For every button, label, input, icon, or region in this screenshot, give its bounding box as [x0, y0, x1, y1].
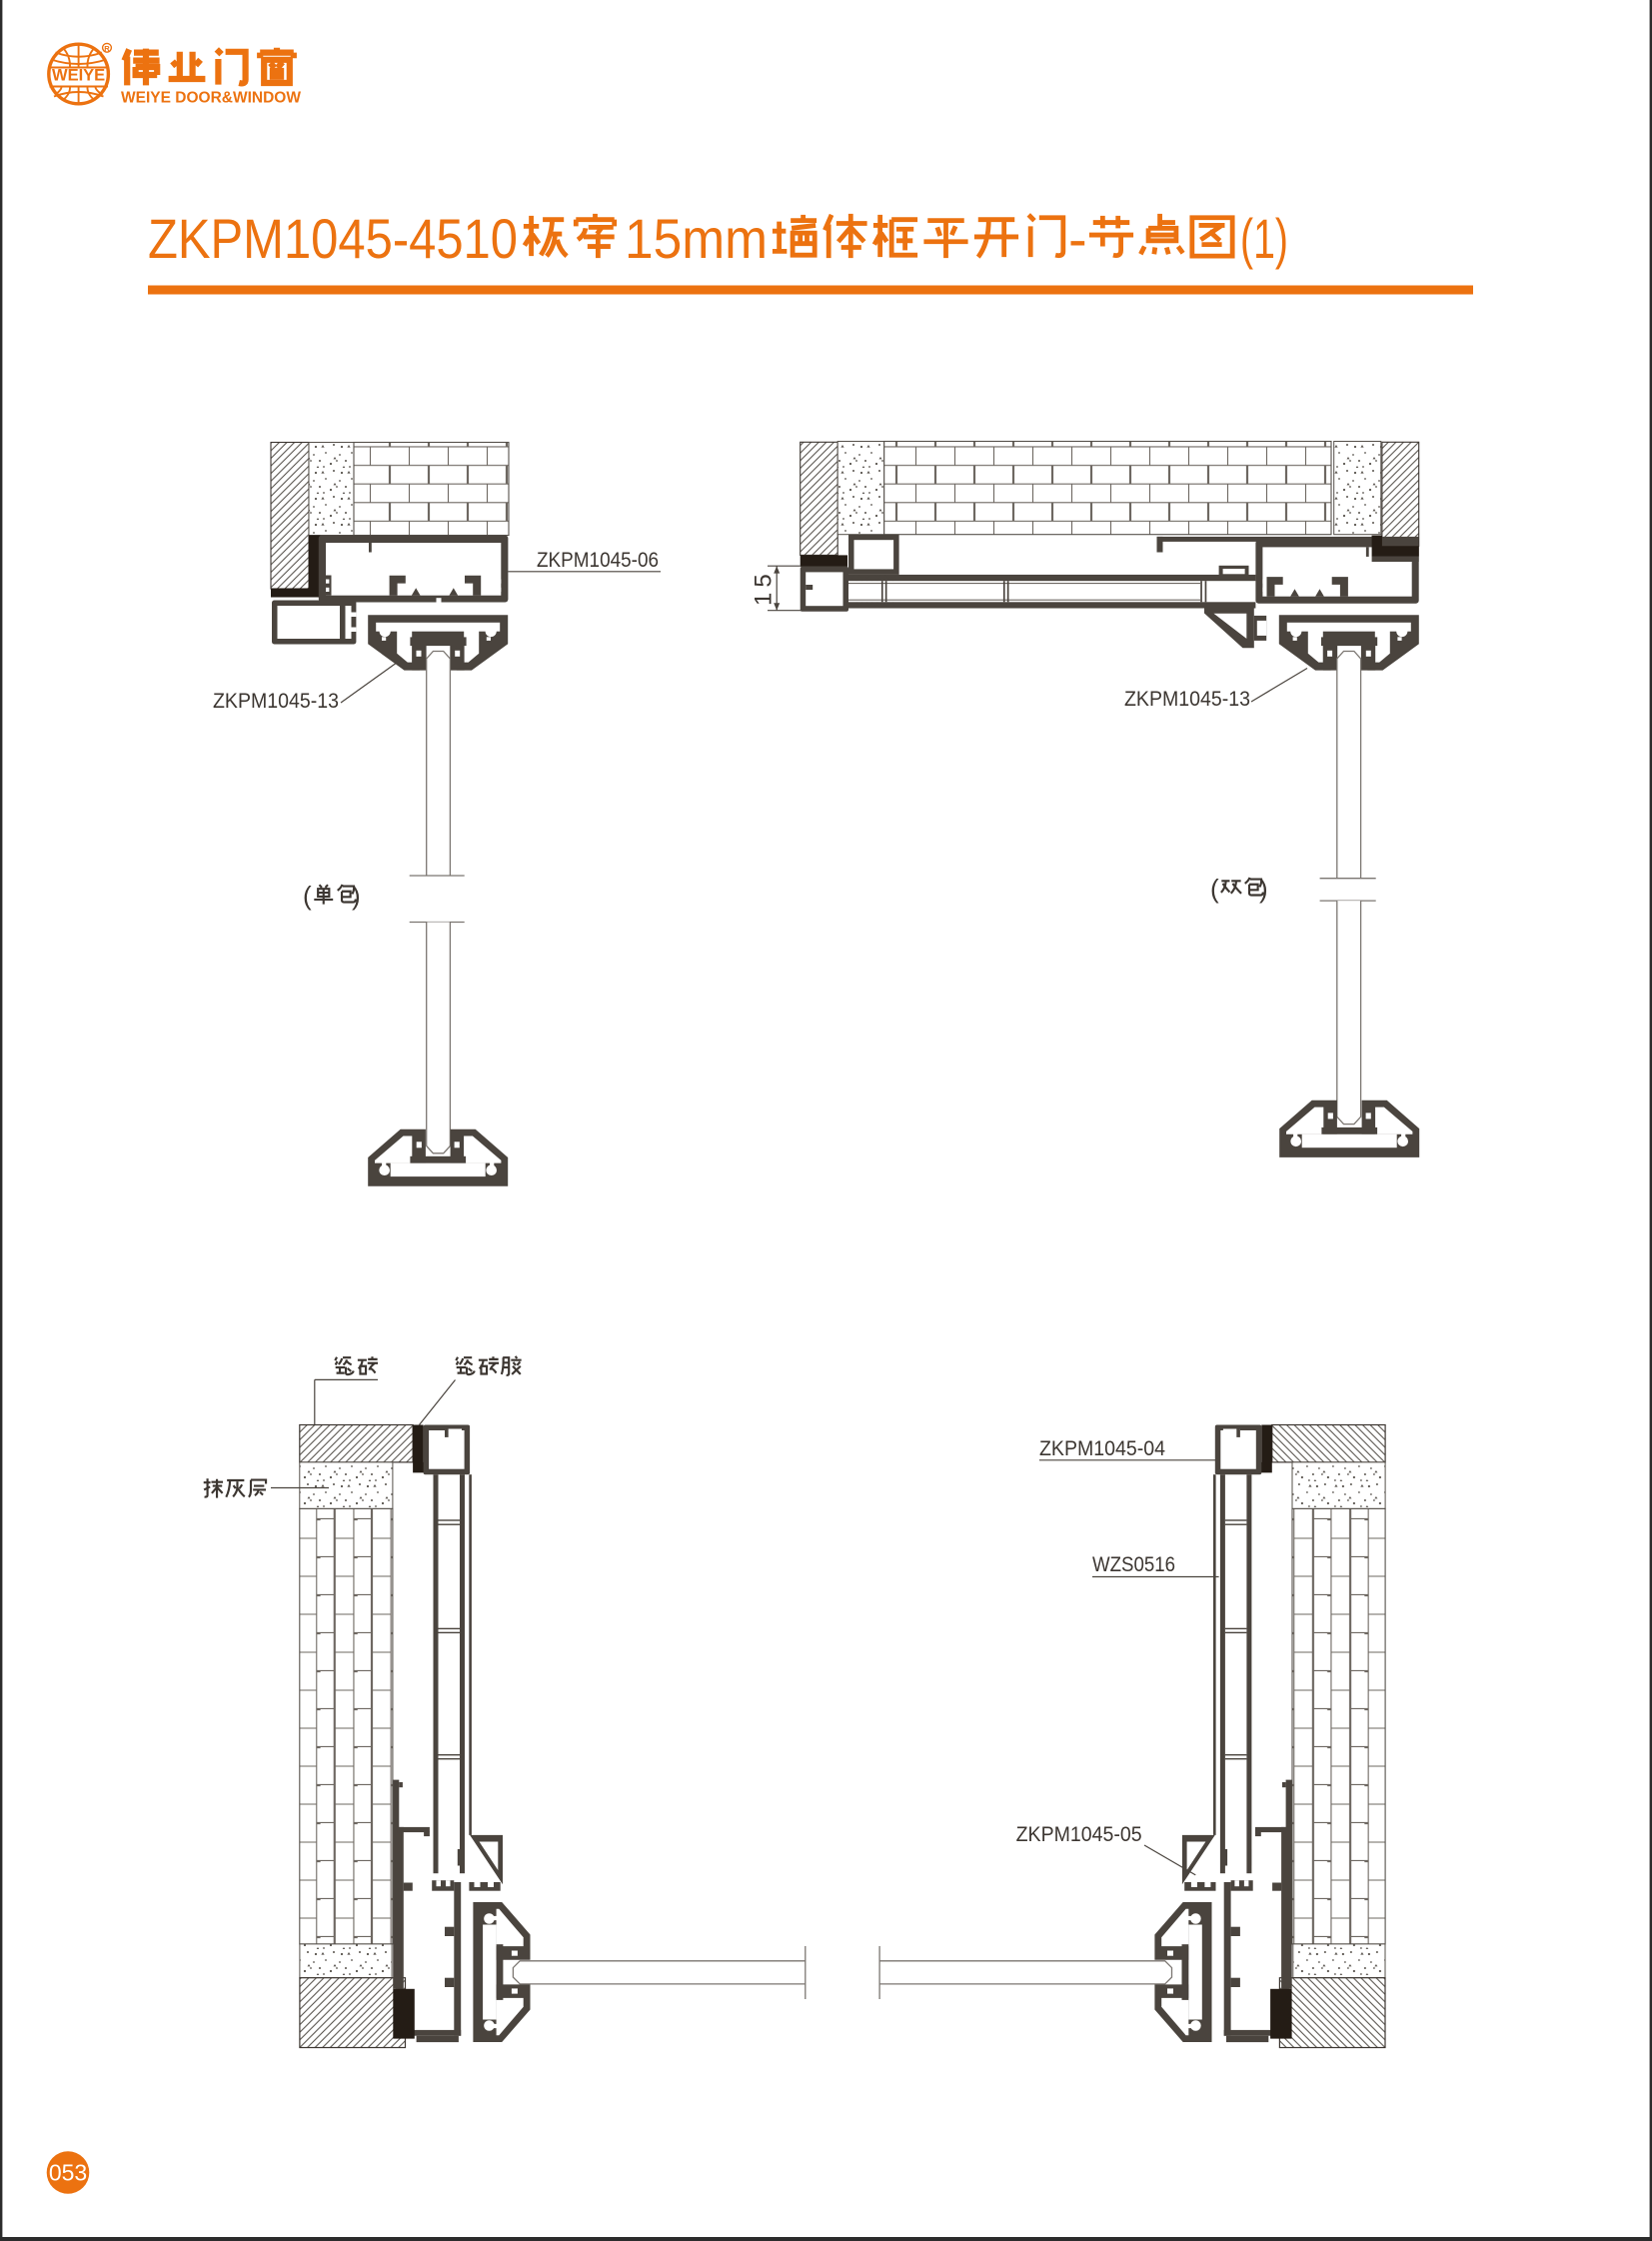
svg-text:): ) — [352, 881, 361, 911]
svg-text:ZKPM1045-13: ZKPM1045-13 — [213, 689, 339, 713]
svg-text:R: R — [104, 44, 110, 53]
svg-text:ZKPM1045-04: ZKPM1045-04 — [1039, 1436, 1165, 1460]
svg-text:ZKPM1045-05: ZKPM1045-05 — [1016, 1822, 1142, 1846]
svg-text:(1): (1) — [1240, 207, 1288, 270]
svg-text:(: ( — [1210, 874, 1219, 904]
svg-text:053: 053 — [49, 2160, 87, 2186]
svg-text:15mm: 15mm — [625, 207, 768, 270]
svg-text:): ) — [1259, 874, 1268, 904]
svg-text:ZKPM1045-4510: ZKPM1045-4510 — [148, 207, 518, 270]
svg-text:(: ( — [303, 881, 312, 911]
svg-text:ZKPM1045-06: ZKPM1045-06 — [537, 548, 659, 572]
svg-text:-: - — [1068, 207, 1087, 270]
svg-text:WEIYE: WEIYE — [52, 67, 105, 85]
svg-text:WZS0516: WZS0516 — [1092, 1552, 1175, 1576]
svg-text:ZKPM1045-13: ZKPM1045-13 — [1124, 687, 1250, 711]
svg-text:15: 15 — [751, 569, 778, 606]
svg-text:WEIYE DOOR&WINDOW: WEIYE DOOR&WINDOW — [121, 90, 301, 107]
